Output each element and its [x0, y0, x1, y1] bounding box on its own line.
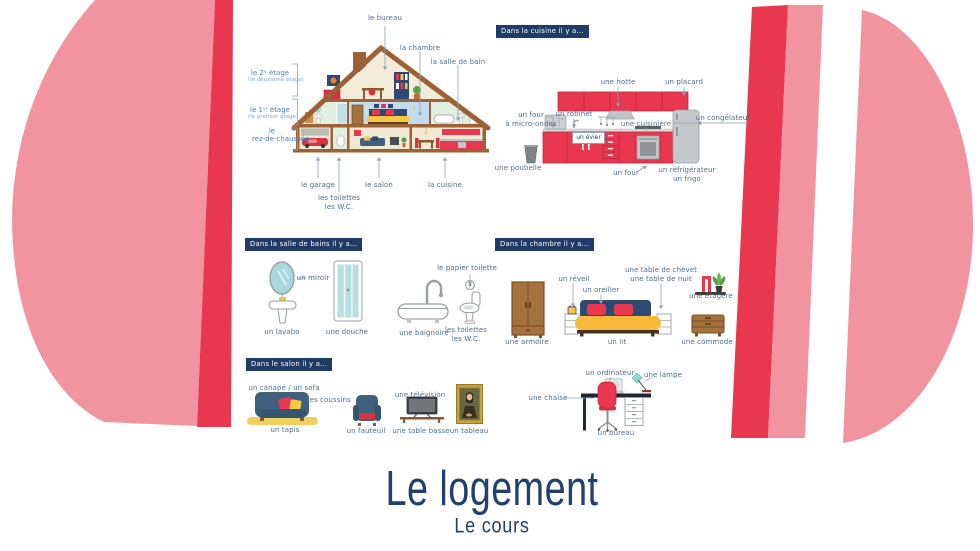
- label-table-basse: une table basse: [392, 427, 449, 436]
- label-cuisine-house: la cuisine: [428, 181, 462, 190]
- label-table-de-chevet: une table de chevet une table de nuit: [625, 266, 697, 284]
- kitchen-section-header: Dans la cuisine il y a...: [496, 25, 589, 38]
- label-fauteuil: un fauteuil: [347, 427, 386, 436]
- label-chambre: la chambre: [400, 44, 440, 53]
- label-salle-de-bain: la salle de bain: [431, 58, 486, 67]
- label-commode: une commode: [681, 338, 732, 347]
- label-hotte: une hotte: [601, 78, 636, 87]
- label-micro-ondes: un four à micro-ondes: [505, 111, 556, 129]
- label-lavabo: un lavabo: [264, 328, 299, 337]
- label-placard: un placard: [665, 78, 703, 87]
- label-armoire: une armoire: [505, 338, 549, 347]
- label-tableau: un tableau: [450, 427, 489, 436]
- label-canape: un canapé / un sofa: [248, 384, 319, 393]
- label-toilettes: les toilettes les W.C.: [445, 326, 487, 344]
- label-television: une télévision: [395, 391, 446, 400]
- label-tapis: un tapis: [271, 426, 300, 435]
- label-premier-etage: le 1ᵉʳ étage (le premier étage): [248, 106, 292, 121]
- label-evier: un évier: [572, 132, 605, 144]
- label-miroir: un miroir: [297, 274, 330, 283]
- label-salon-house: le salon: [365, 181, 393, 190]
- label-congelateur: un congélateur: [696, 114, 750, 123]
- label-douche: une douche: [326, 328, 368, 337]
- label-lit: un lit: [608, 338, 626, 347]
- label-reveil: un réveil: [558, 275, 589, 284]
- bathroom-section-header: Dans la salle de bains il y a...: [245, 238, 362, 251]
- label-deuxieme-etage: le 2ᵉ étage (le deuxième étage): [248, 69, 292, 84]
- label-refrigerateur: un réfrigérateur un frigo: [658, 166, 715, 184]
- livingroom-section-header: Dans le salon il y a...: [246, 358, 332, 371]
- label-robinet: un robinet: [556, 110, 593, 119]
- label-ordinateur: un ordinateur: [586, 369, 635, 378]
- vocabulary-poster: Dans la cuisine il y a... Dans la salle …: [0, 0, 980, 551]
- label-garage: le garage: [301, 181, 335, 190]
- label-cuisiniere: une cuisinière: [621, 120, 671, 129]
- label-chaise: une chaise: [529, 394, 568, 403]
- label-four: un four: [613, 169, 639, 178]
- label-rez-de-chaussee: le rez-de-chaussée: [252, 127, 292, 143]
- label-coussins: des coussins: [305, 396, 351, 405]
- label-toilettes-house: les toilettes les W.C.: [318, 194, 360, 212]
- bedroom-section-header: Dans la chambre il y a...: [495, 238, 594, 251]
- label-lampe: une lampe: [644, 371, 682, 380]
- label-poubelle: une poubelle: [495, 164, 542, 173]
- label-etagere: une étagère: [689, 292, 733, 301]
- poster-title: Le logement: [385, 460, 598, 517]
- label-papier-toilette: le papier toilette: [437, 264, 497, 273]
- label-bureau-desk: un bureau: [598, 429, 635, 438]
- poster-subtitle: Le cours: [454, 515, 529, 539]
- label-baignoire: une baignoire: [399, 329, 449, 338]
- label-bureau: le bureau: [368, 14, 402, 23]
- label-oreiller: un oreiller: [583, 286, 620, 295]
